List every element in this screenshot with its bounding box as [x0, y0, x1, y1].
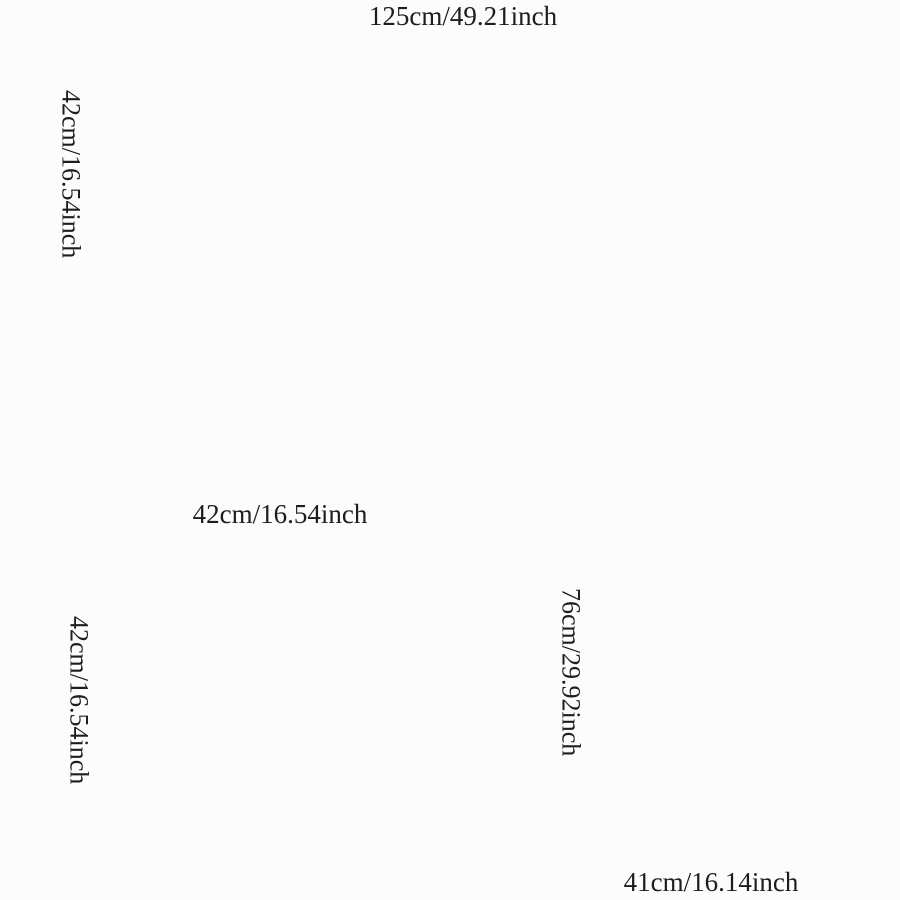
- diagram-canvas: [0, 0, 900, 900]
- square-mat-width-label: 42cm/16.54inch: [133, 500, 427, 530]
- floor-mat-dimension-diagram: 125cm/49.21inch 42cm/16.54inch 42cm/16.5…: [0, 0, 900, 900]
- driver-mat-height-label: 76cm/29.92inch: [552, 505, 588, 839]
- rear-set-height-label: 42cm/16.54inch: [52, 58, 88, 290]
- driver-mat-width-label: 41cm/16.14inch: [606, 868, 816, 898]
- rear-set-width-label: 125cm/49.21inch: [116, 2, 810, 32]
- square-mat-height-label: 42cm/16.54inch: [60, 547, 96, 853]
